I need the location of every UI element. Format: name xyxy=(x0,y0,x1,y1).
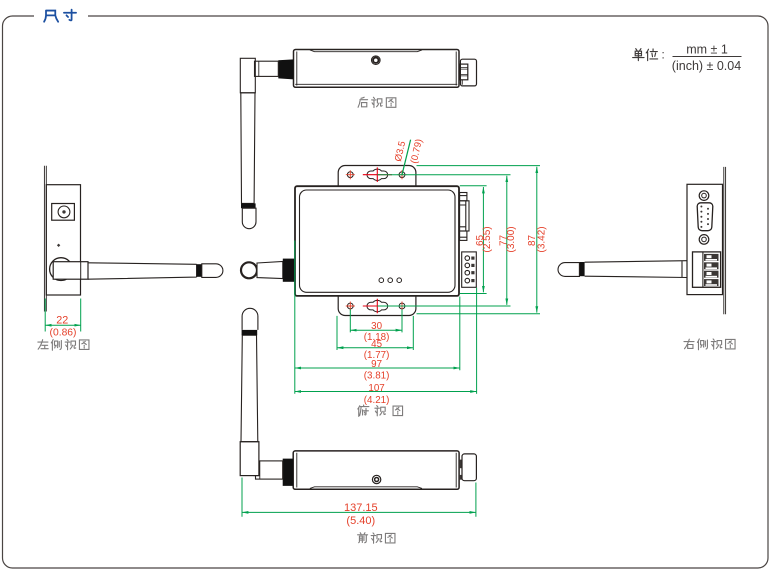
svg-text:107: 107 xyxy=(368,383,384,394)
svg-text:137.15: 137.15 xyxy=(344,502,378,514)
svg-text:(3.81): (3.81) xyxy=(364,371,390,382)
svg-text:22: 22 xyxy=(56,315,68,327)
svg-text:(0.79): (0.79) xyxy=(409,138,425,165)
svg-text:(0.86): (0.86) xyxy=(50,328,77,339)
svg-text:(4.21): (4.21) xyxy=(364,395,390,406)
svg-text::: : xyxy=(662,50,665,62)
svg-text:(3.42): (3.42) xyxy=(537,226,548,252)
svg-text:30: 30 xyxy=(371,321,382,332)
svg-text:mm ± 1: mm ± 1 xyxy=(686,43,728,57)
svg-text:45: 45 xyxy=(371,339,382,350)
svg-text:(5.40): (5.40) xyxy=(346,515,375,527)
svg-text:(3.00): (3.00) xyxy=(506,226,517,252)
svg-text:(inch) ± 0.04: (inch) ± 0.04 xyxy=(672,59,741,73)
svg-text:(2.55): (2.55) xyxy=(482,226,493,252)
svg-text:97: 97 xyxy=(371,359,382,370)
